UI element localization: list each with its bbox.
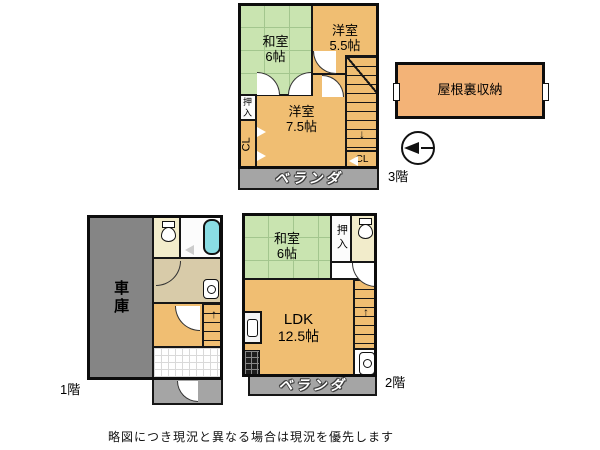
floor-plan-1f: 車庫 ↑ (87, 215, 223, 405)
entrance-porch-1f (152, 378, 223, 405)
room-name: 和室 (262, 35, 288, 50)
room-hall-1f (152, 302, 204, 348)
veranda-2f: ベランダ (248, 374, 377, 396)
floor-label-1f: 1階 (60, 379, 80, 398)
closet-oshiire-2f: 押入 (330, 213, 352, 263)
compass-icon (401, 131, 435, 165)
folding-door-icon (349, 156, 358, 166)
room-name: 洋室 (332, 24, 358, 39)
closet-cl-left-3f: CL (238, 119, 257, 169)
folding-door-icon (257, 151, 266, 161)
room-washroom-1f (152, 257, 223, 304)
toilet-icon (358, 218, 373, 239)
floor-label-3f: 3階 (388, 166, 408, 185)
window-mark (393, 83, 400, 101)
room-size: 6帖 (277, 247, 297, 262)
veranda-3f: ベランダ (238, 166, 379, 190)
stove-icon (244, 350, 260, 375)
floor-plan-page: 洋室 7.5帖 和室 6帖 洋室 5.5帖 押入 CL ↓ CL (0, 0, 600, 450)
stairs-1f: ↑ (202, 302, 223, 348)
toilet-icon (161, 221, 176, 242)
folding-door-icon (257, 127, 266, 137)
closet-oshiire-3f: 押入 (238, 94, 257, 121)
door-arc (175, 306, 200, 331)
washbasin-icon (359, 352, 375, 375)
room-size: 7.5帖 (286, 120, 317, 135)
stairs-up-arrow-icon: ↑ (211, 308, 217, 320)
window-mark (542, 83, 549, 101)
attic-storage: 屋根裏収納 (395, 62, 545, 119)
room-washitsu-2f: 和室 6帖 (242, 213, 332, 280)
room-size: 6帖 (265, 50, 285, 65)
room-entrance-1f (152, 346, 223, 380)
washbasin-icon (203, 279, 219, 299)
stairs-down-arrow-icon: ↓ (359, 128, 365, 140)
room-toilet-1f (152, 215, 181, 259)
bath-door-icon (185, 245, 194, 255)
door-arc (156, 261, 181, 286)
disclaimer-text: 略図につき現況と異なる場合は現況を優先します (108, 428, 394, 445)
room-name: 和室 (274, 232, 300, 247)
room-garage: 車庫 (87, 215, 154, 380)
floor-plan-3f: 洋室 7.5帖 和室 6帖 洋室 5.5帖 押入 CL ↓ CL (238, 3, 379, 193)
room-size: 12.5帖 (278, 328, 319, 344)
room-toilet-2f (350, 213, 377, 263)
stairs-up-arrow-icon: ↑ (363, 306, 369, 318)
door-arc (177, 381, 198, 402)
kitchen-sink-icon (243, 311, 262, 344)
closet-cl-right-3f: CL (345, 150, 379, 169)
room-bath-1f (179, 215, 223, 259)
room-name: LDK (284, 311, 313, 328)
stairs-3f: ↓ (345, 55, 379, 152)
floor-plan-2f: LDK 12.5帖 和室 6帖 押入 ↑ ベランダ (242, 213, 377, 397)
stairs-2f: ↑ (353, 278, 377, 350)
room-name: 洋室 (288, 105, 314, 120)
floor-label-2f: 2階 (385, 372, 405, 391)
bathtub-icon (203, 219, 221, 255)
